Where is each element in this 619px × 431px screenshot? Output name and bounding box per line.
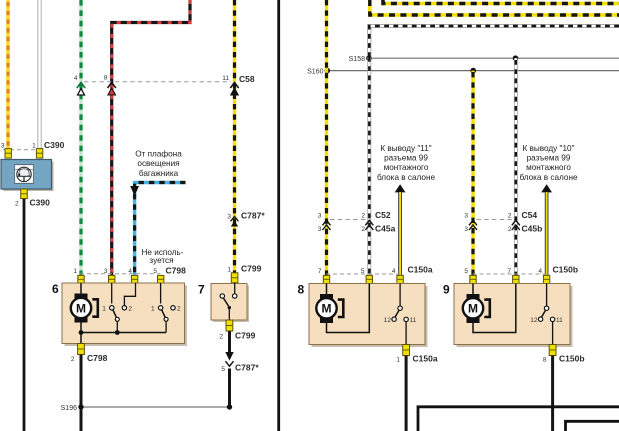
svg-text:C54: C54	[522, 210, 538, 220]
svg-text:2: 2	[361, 226, 365, 233]
svg-text:C52: C52	[375, 210, 391, 220]
svg-text:монтажного: монтажного	[526, 163, 571, 172]
svg-text:C799: C799	[235, 331, 256, 341]
svg-text:2: 2	[128, 305, 132, 312]
svg-text:разъема 99: разъема 99	[527, 154, 571, 163]
svg-text:2: 2	[508, 213, 512, 220]
svg-text:освещения: освещения	[137, 159, 179, 168]
svg-text:4: 4	[128, 268, 132, 275]
svg-text:3: 3	[318, 213, 322, 220]
svg-text:S158: S158	[349, 56, 365, 63]
svg-text:блока в салоне: блока в салоне	[519, 173, 578, 182]
svg-text:C150a: C150a	[413, 354, 438, 364]
svg-text:M: M	[322, 302, 332, 316]
svg-text:7: 7	[507, 268, 511, 275]
svg-text:3: 3	[1, 143, 5, 150]
svg-text:1: 1	[227, 267, 231, 274]
svg-text:блока в салоне: блока в салоне	[377, 173, 436, 182]
svg-text:2: 2	[177, 305, 181, 312]
svg-text:5: 5	[153, 268, 157, 275]
svg-text:C787*: C787*	[235, 363, 259, 373]
svg-text:К выводу "10": К выводу "10"	[523, 144, 575, 153]
svg-text:9: 9	[443, 283, 450, 297]
svg-text:C799: C799	[241, 264, 262, 274]
svg-text:11: 11	[222, 75, 229, 82]
svg-text:C390: C390	[44, 140, 65, 150]
svg-text:3: 3	[464, 226, 468, 233]
svg-text:8: 8	[543, 357, 547, 364]
svg-text:4: 4	[538, 268, 542, 275]
svg-text:7: 7	[318, 268, 322, 275]
svg-text:1: 1	[32, 143, 36, 150]
svg-text:C150b: C150b	[559, 354, 585, 364]
svg-text:1: 1	[151, 305, 155, 312]
svg-text:3: 3	[318, 226, 322, 233]
svg-text:3: 3	[227, 214, 231, 221]
svg-text:C150b: C150b	[553, 265, 579, 275]
svg-text:2: 2	[15, 201, 19, 208]
svg-text:4: 4	[392, 268, 396, 275]
svg-text:11: 11	[410, 317, 417, 324]
svg-text:12: 12	[384, 317, 392, 324]
svg-text:8: 8	[104, 75, 108, 82]
svg-text:5: 5	[464, 268, 468, 275]
svg-text:5: 5	[221, 366, 225, 373]
svg-text:2: 2	[508, 226, 512, 233]
svg-text:1: 1	[73, 268, 77, 275]
svg-text:2: 2	[361, 213, 365, 220]
svg-text:1: 1	[396, 357, 400, 364]
svg-text:2: 2	[219, 334, 223, 341]
svg-text:11: 11	[556, 317, 563, 324]
svg-text:7: 7	[198, 283, 205, 297]
svg-text:багажника: багажника	[139, 169, 179, 178]
svg-text:5: 5	[361, 268, 365, 275]
svg-text:C798: C798	[87, 353, 108, 363]
svg-text:От плафона: От плафона	[135, 149, 182, 158]
svg-text:C390: C390	[30, 198, 51, 208]
svg-text:S160: S160	[307, 69, 323, 76]
svg-text:зуется: зуется	[149, 256, 173, 265]
svg-text:3: 3	[104, 268, 108, 275]
svg-text:6: 6	[52, 282, 59, 296]
svg-text:К выводу "11": К выводу "11"	[380, 144, 431, 153]
svg-text:монтажного: монтажного	[384, 163, 429, 172]
svg-text:2: 2	[71, 356, 75, 363]
svg-text:C787*: C787*	[241, 211, 265, 221]
svg-text:C798: C798	[166, 266, 187, 276]
svg-text:4: 4	[74, 75, 78, 82]
svg-text:S196: S196	[61, 405, 77, 412]
svg-text:разъема 99: разъема 99	[384, 154, 428, 163]
svg-text:M: M	[468, 302, 478, 316]
svg-text:8: 8	[298, 283, 305, 297]
svg-text:C45b: C45b	[522, 224, 543, 234]
svg-text:C58: C58	[239, 74, 255, 84]
svg-text:C150a: C150a	[408, 265, 433, 275]
svg-text:M: M	[76, 301, 86, 315]
svg-text:12: 12	[530, 317, 538, 324]
svg-text:1: 1	[102, 305, 106, 312]
svg-text:C45a: C45a	[375, 224, 396, 234]
svg-text:3: 3	[464, 213, 468, 220]
